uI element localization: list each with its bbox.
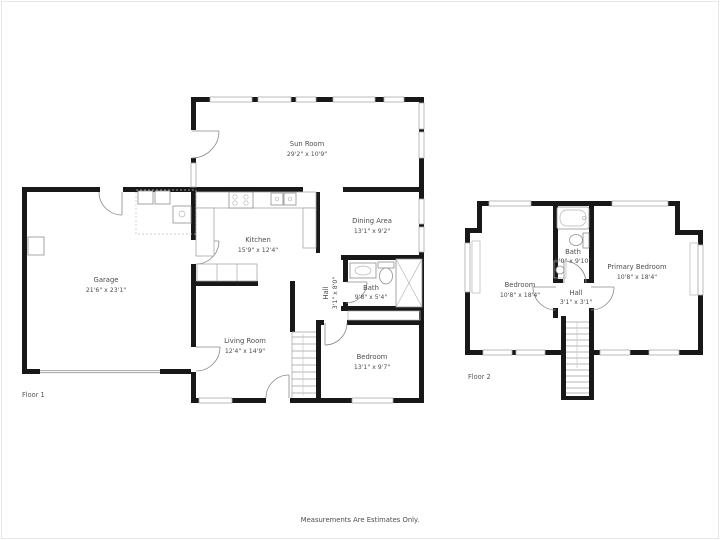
room-dims-sun-room: 29'2" x 10'9" (287, 151, 327, 158)
room-dims-hall1: 3'1" x 8'0" (332, 277, 339, 310)
stove-icon (229, 192, 253, 208)
room-dims-dining: 13'1" x 9'2" (354, 228, 391, 235)
disclaimer-text: Measurements Are Estimates Only. (301, 516, 419, 524)
washer-icon (138, 191, 153, 204)
room-label-bath2: Bath (565, 248, 581, 256)
vanity-icon (350, 263, 376, 278)
room-dims-bath2: 5'0" x 9'10" (555, 258, 592, 265)
room-dims-bedroom1: 13'1" x 9'7" (354, 364, 391, 371)
water-heater-icon (28, 237, 44, 255)
room-dims-kitchen: 15'9" x 12'4" (238, 247, 278, 254)
toilet-icon (378, 262, 394, 268)
room-label-bedroom1: Bedroom (357, 353, 388, 361)
room-label-living: Living Room (224, 337, 266, 345)
bath-sink-icon (556, 266, 564, 274)
room-label-primary: Primary Bedroom (607, 263, 667, 271)
utility-sink-icon (173, 206, 191, 223)
room-dims-living: 12'4" x 14'9" (225, 348, 265, 355)
toilet2-icon (583, 233, 589, 248)
dryer-icon (155, 191, 170, 204)
room-dims-bedroom2: 10'8" x 18'4" (500, 292, 540, 299)
room-label-garage: Garage (94, 276, 119, 284)
floor2-label: Floor 2 (468, 373, 491, 381)
room-label-sun-room: Sun Room (290, 140, 325, 148)
room-dims-bath1: 9'8" x 5'4" (355, 294, 388, 301)
floor1-label: Floor 1 (22, 391, 45, 399)
room-dims-garage: 21'6" x 23'1" (86, 287, 126, 294)
floorplan-image: Sun Room 29'2" x 10'9" Kitchen 15'9" x 1… (0, 0, 720, 540)
room-label-bath1: Bath (363, 284, 379, 292)
room-label-bedroom2: Bedroom (505, 281, 536, 289)
room-label-hall2: Hall (569, 289, 582, 297)
floorplan-svg: Sun Room 29'2" x 10'9" Kitchen 15'9" x 1… (0, 0, 720, 540)
room-label-dining: Dining Area (352, 217, 392, 225)
room-label-hall1: Hall (322, 286, 330, 299)
room-label-kitchen: Kitchen (245, 236, 271, 244)
room-dims-hall2: 3'1" x 3'1" (560, 299, 593, 306)
kitchen-sink-icon (271, 193, 283, 205)
room-dims-primary: 10'8" x 18'4" (617, 274, 657, 281)
